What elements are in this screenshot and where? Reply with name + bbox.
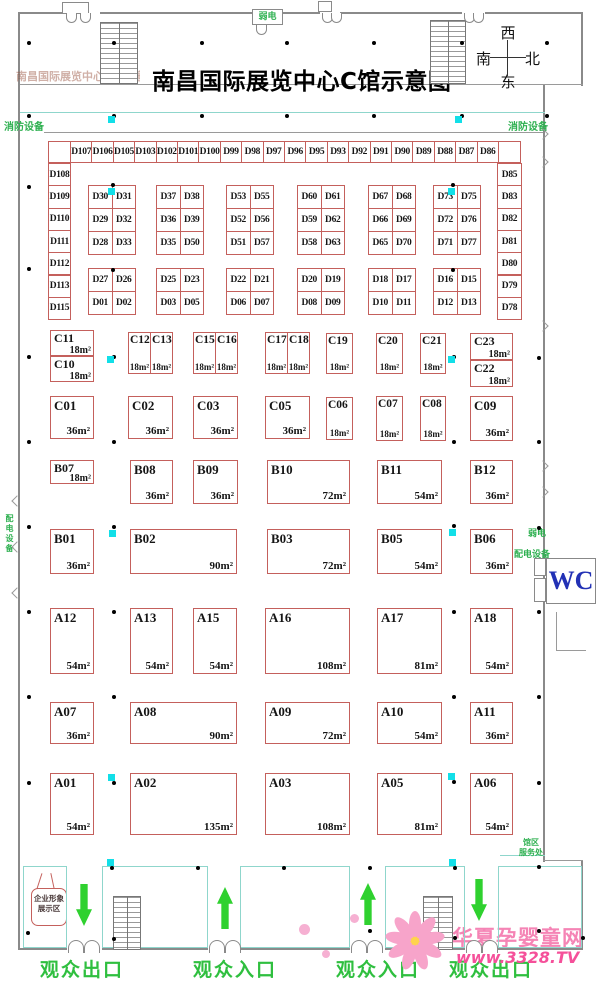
cyan-marker <box>109 530 116 537</box>
booth-D83: D83 <box>497 185 522 208</box>
booth-D35: D35 <box>156 231 181 255</box>
booth-area: 72m² <box>323 730 346 742</box>
booth-C22: C2218m² <box>470 360 513 387</box>
wall-right-step-top <box>543 84 583 85</box>
page-title: 南昌国际展览中心C馆示意图 <box>152 62 451 96</box>
booth-D61: D61 <box>321 185 346 209</box>
booth-C10: C1018m² <box>50 356 94 382</box>
booth-D71: D71 <box>433 231 458 255</box>
cyan-marker <box>455 116 462 123</box>
booth-area: 81m² <box>415 821 438 833</box>
booth-C02: C0236m² <box>128 396 173 439</box>
booth-D23: D23 <box>180 268 205 292</box>
booth-B10: B1072m² <box>267 460 350 504</box>
booth-C13: C1318m² <box>150 332 173 374</box>
booth-A15: A1554m² <box>193 608 237 674</box>
pillar-dot <box>451 183 455 187</box>
booth-id: C01 <box>54 398 76 414</box>
booth-id: A01 <box>54 775 76 791</box>
booth-id: C21 <box>422 335 442 347</box>
booth-area: 18m² <box>70 473 91 484</box>
booth-area: 36m² <box>283 425 306 437</box>
booth-area: 72m² <box>323 490 346 502</box>
wc-bracket-horizontal <box>556 650 586 651</box>
booth-area: 36m² <box>486 427 509 439</box>
service-desk-line2: 服务处 <box>512 848 550 858</box>
booth-area: 54m² <box>67 660 90 672</box>
booth-A12: A1254m² <box>50 608 94 674</box>
booth-id: A16 <box>269 610 291 626</box>
booth-C18: C1818m² <box>287 332 310 374</box>
booth-D13: D13 <box>457 291 482 315</box>
booth-area: 18m² <box>421 362 445 372</box>
booth-id: B03 <box>271 531 293 547</box>
booth-D96: D96 <box>284 141 306 163</box>
booth-id: C17 <box>267 334 287 346</box>
cyan-marker <box>448 773 455 780</box>
booth-id: A02 <box>134 775 156 791</box>
booth-area: 36m² <box>67 425 90 437</box>
pillar-dot <box>452 780 456 784</box>
booth-id: C22 <box>474 361 495 376</box>
booth-id: C05 <box>269 398 291 414</box>
d-corridor-line <box>44 132 543 133</box>
entrance-bay <box>23 866 67 948</box>
booth-area: 54m² <box>67 821 90 833</box>
booth-D112: D112 <box>48 252 71 275</box>
booth-D90: D90 <box>391 141 413 163</box>
booth-id: C02 <box>132 398 154 414</box>
entrance-label-left: 观众入口 <box>193 955 277 982</box>
pillar-dot <box>111 268 115 272</box>
booth-id: C19 <box>328 335 348 347</box>
booth-D76: D76 <box>457 208 482 232</box>
booth-B01: B0136m² <box>50 529 94 574</box>
booth-D67: D67 <box>368 185 393 209</box>
booth-area: 36m² <box>67 560 90 572</box>
booth-A02: A02135m² <box>130 773 237 835</box>
cyan-marker <box>448 356 455 363</box>
compass-south: 南 <box>476 48 491 69</box>
booth-area: 90m² <box>210 730 233 742</box>
booth-area: 18m² <box>266 362 287 372</box>
booth-id: C12 <box>130 334 150 346</box>
pillar-dot <box>368 929 372 933</box>
booth-D63: D63 <box>321 231 346 255</box>
booth-C09: C0936m² <box>470 396 513 441</box>
booth-D75: D75 <box>457 185 482 209</box>
booth-D70: D70 <box>392 231 417 255</box>
booth-area: 18m² <box>327 362 352 372</box>
booth-D93: D93 <box>327 141 349 163</box>
pillar-dot <box>537 781 541 785</box>
booth-id: B09 <box>197 462 219 478</box>
pillar-dot <box>27 781 31 785</box>
entrance-bay <box>240 866 350 948</box>
pillar-dot <box>112 41 116 45</box>
booth-D80: D80 <box>497 252 522 275</box>
pillar-dot <box>545 41 549 45</box>
booth-area: 36m² <box>211 425 234 437</box>
booth-D98: D98 <box>241 141 263 163</box>
pillar-dot <box>27 267 31 271</box>
booth-id: A07 <box>54 704 76 720</box>
pillar-dot <box>112 440 116 444</box>
booth-D12: D12 <box>433 291 458 315</box>
booth-B11: B1154m² <box>377 460 442 504</box>
booth-id: C23 <box>474 334 495 349</box>
wall-joint <box>537 320 548 331</box>
booth-area: 18m² <box>489 349 510 360</box>
exhibition-floor-plan: 南昌国际展览中心C馆示意图 南昌国际展览中心C馆示意图 西 南 北 东 消防设备… <box>0 0 600 984</box>
booth-area: 18m² <box>70 371 91 382</box>
pillar-dot <box>196 866 200 870</box>
wall-joint <box>537 156 548 167</box>
pillar-dot <box>581 936 585 940</box>
booth-B06: B0636m² <box>470 529 513 574</box>
booth-area: 54m² <box>486 821 509 833</box>
booth-C16: C1618m² <box>215 332 238 374</box>
booth-id: C11 <box>54 331 74 346</box>
booth-id: C20 <box>378 335 398 347</box>
fire-equipment-label-left: 消防设备 <box>4 118 44 133</box>
booth-D79: D79 <box>497 275 522 298</box>
door-arc <box>367 940 383 953</box>
booth-D32: D32 <box>112 208 137 232</box>
booth-D52: D52 <box>226 208 251 232</box>
booth-C11: C1118m² <box>50 330 94 356</box>
pillar-dot <box>112 781 116 785</box>
pillar-dot <box>537 865 541 869</box>
booth-C08: C0818m² <box>420 396 446 441</box>
booth-D68: D68 <box>392 185 417 209</box>
pillar-dot <box>27 185 31 189</box>
booth-D65: D65 <box>368 231 393 255</box>
booth-D07: D07 <box>250 291 275 315</box>
door-arc <box>331 13 342 23</box>
compass-west: 西 <box>500 22 515 43</box>
booth-A03: A03108m² <box>265 773 350 835</box>
booth-area: 54m² <box>415 490 438 502</box>
booth-A18: A1854m² <box>470 608 513 674</box>
booth-id: A08 <box>134 704 156 720</box>
booth-C12: C1218m² <box>128 332 151 374</box>
wc-room: WC <box>546 558 596 604</box>
pillar-dot <box>111 183 115 187</box>
wc-fixture-2 <box>534 578 546 602</box>
booth-B09: B0936m² <box>193 460 238 504</box>
pillar-dot <box>372 41 376 45</box>
booth-D31: D31 <box>112 185 137 209</box>
booth-D11: D11 <box>392 291 417 315</box>
booth-area: 18m² <box>489 376 510 387</box>
booth-area: 18m² <box>216 362 237 372</box>
booth-D108: D108 <box>48 163 71 186</box>
booth-B02: B0290m² <box>130 529 237 574</box>
booth-C05: C0536m² <box>265 396 310 439</box>
booth-D101: D101 <box>177 141 199 163</box>
booth-C06: C0618m² <box>326 397 353 440</box>
pillar-dot <box>537 440 541 444</box>
booth-C21: C2118m² <box>420 333 446 374</box>
booth-area: 81m² <box>415 660 438 672</box>
booth-B03: B0372m² <box>267 529 350 574</box>
booth-D36: D36 <box>156 208 181 232</box>
booth-area: 18m² <box>377 429 402 439</box>
booth-id: A11 <box>474 704 496 720</box>
cyan-marker <box>108 116 115 123</box>
booth-D105: D105 <box>113 141 135 163</box>
door-arc <box>209 940 225 953</box>
wall-joint <box>11 495 22 506</box>
booth-area: 18m² <box>151 362 172 372</box>
exit-label-left: 观众出口 <box>40 955 124 982</box>
booth-C15: C1518m² <box>193 332 216 374</box>
pillar-dot <box>451 268 455 272</box>
booth-D110: D110 <box>48 208 71 231</box>
booth-D88: D88 <box>434 141 456 163</box>
booth-D66: D66 <box>368 208 393 232</box>
booth-D59: D59 <box>297 208 322 232</box>
booth-D57: D57 <box>250 231 275 255</box>
booth-area: 36m² <box>486 560 509 572</box>
vent-box <box>318 1 332 12</box>
booth-D10: D10 <box>368 291 393 315</box>
booth-D89: D89 <box>412 141 434 163</box>
pillar-dot <box>452 524 456 528</box>
pillar-dot <box>27 41 31 45</box>
booth-A17: A1781m² <box>377 608 442 674</box>
booth-A07: A0736m² <box>50 702 94 744</box>
door-arc <box>66 13 77 23</box>
booth-D99: D99 <box>220 141 242 163</box>
booth-A06: A0654m² <box>470 773 513 835</box>
booth-area: 72m² <box>323 560 346 572</box>
booth-D81: D81 <box>497 230 522 253</box>
booth-id: B11 <box>381 462 402 478</box>
booth-D69: D69 <box>392 208 417 232</box>
booth-area: 54m² <box>210 660 233 672</box>
booth-D25: D25 <box>156 268 181 292</box>
booth-D33: D33 <box>112 231 137 255</box>
booth-D56: D56 <box>250 208 275 232</box>
pillar-dot <box>27 695 31 699</box>
cyan-marker <box>108 774 115 781</box>
wc-label: WC <box>549 566 594 596</box>
booth-area: 108m² <box>317 821 346 833</box>
cyan-marker <box>449 859 456 866</box>
booth-id: C18 <box>289 334 309 346</box>
booth-D100: D100 <box>198 141 220 163</box>
stairwell <box>100 22 138 84</box>
booth-area: 18m² <box>70 345 91 356</box>
booth-id: A18 <box>474 610 496 626</box>
booth-D107: D107 <box>70 141 92 163</box>
booth-A09: A0972m² <box>265 702 350 744</box>
booth-B05: B0554m² <box>377 529 442 574</box>
booth-area: 54m² <box>486 660 509 672</box>
booth-id: B05 <box>381 531 403 547</box>
booth-D50: D50 <box>180 231 205 255</box>
door-arc <box>68 940 84 953</box>
booth-D08: D08 <box>297 291 322 315</box>
booth-id: A13 <box>134 610 156 626</box>
booth-D37: D37 <box>156 185 181 209</box>
booth-area: 36m² <box>211 490 234 502</box>
booth-area: 54m² <box>415 730 438 742</box>
weak-current-box: 弱电 <box>252 9 283 25</box>
booth-D91: D91 <box>370 141 392 163</box>
pillar-dot <box>200 41 204 45</box>
booth-C23: C2318m² <box>470 333 513 360</box>
door-arc <box>84 940 100 953</box>
pillar-dot <box>537 929 541 933</box>
compass-cross-vertical <box>507 40 508 76</box>
booth-D51: D51 <box>226 231 251 255</box>
booth-area: 18m² <box>129 362 150 372</box>
booth-area: 36m² <box>486 730 509 742</box>
booth-D72: D72 <box>433 208 458 232</box>
booth-D60: D60 <box>297 185 322 209</box>
booth-id: C16 <box>217 334 237 346</box>
booth-area: 18m² <box>421 429 445 439</box>
booth-D09: D09 <box>321 291 346 315</box>
booth-id: C09 <box>474 398 496 414</box>
booth-id: A06 <box>474 775 496 791</box>
booth-D95: D95 <box>305 141 327 163</box>
booth-D03: D03 <box>156 291 181 315</box>
booth-D15: D15 <box>457 268 482 292</box>
booth-area: 18m² <box>327 428 352 438</box>
pillar-dot <box>452 695 456 699</box>
booth-area: 36m² <box>146 490 169 502</box>
booth-D38: D38 <box>180 185 205 209</box>
booth-D17: D17 <box>392 268 417 292</box>
booth-B08: B0836m² <box>130 460 173 504</box>
entrance-arrow <box>360 883 376 925</box>
booth-D115: D115 <box>48 297 71 320</box>
cyan-marker <box>107 356 114 363</box>
pillar-dot <box>112 610 116 614</box>
pillar-dot <box>27 114 31 118</box>
booth-id: B12 <box>474 462 496 478</box>
pillar-dot <box>537 695 541 699</box>
booth-D102: D102 <box>156 141 178 163</box>
wall-top <box>18 12 583 14</box>
pillar-dot <box>285 41 289 45</box>
pillar-dot <box>27 525 31 529</box>
booth-D86: D86 <box>477 141 499 163</box>
booth-A08: A0890m² <box>130 702 237 744</box>
door-arc <box>482 940 498 953</box>
pillar-dot <box>537 356 541 360</box>
booth-id: A09 <box>269 704 291 720</box>
booth-D02: D02 <box>112 291 137 315</box>
pillar-dot <box>27 610 31 614</box>
door-arc <box>225 940 241 953</box>
booth-area: 54m² <box>146 660 169 672</box>
booth-D85: D85 <box>497 163 522 186</box>
pillar-dot <box>460 41 464 45</box>
booth-area: 108m² <box>317 660 346 672</box>
booth-D78: D78 <box>497 297 522 320</box>
booth-D58: D58 <box>297 231 322 255</box>
pillar-dot <box>545 114 549 118</box>
booth-area: 135m² <box>204 821 233 833</box>
door-arc <box>351 940 367 953</box>
booth-C20: C2018m² <box>376 333 403 374</box>
booth-D39: D39 <box>180 208 205 232</box>
booth-id: C13 <box>152 334 172 346</box>
compass-east: 东 <box>500 71 515 92</box>
compass-north: 北 <box>525 48 540 69</box>
entrance-bay <box>498 866 582 948</box>
booth-D92: D92 <box>348 141 370 163</box>
booth-D27: D27 <box>88 268 113 292</box>
booth-A10: A1054m² <box>377 702 442 744</box>
booth-C17: C1718m² <box>265 332 288 374</box>
wall-joint <box>11 587 22 598</box>
booth-C03: C0336m² <box>193 396 238 439</box>
booth-empty-right <box>498 141 521 163</box>
pillar-dot <box>453 936 457 940</box>
booth-D20: D20 <box>297 268 322 292</box>
inner-teal-line <box>20 112 545 113</box>
booth-B07: B0718m² <box>50 460 94 484</box>
booth-D29: D29 <box>88 208 113 232</box>
cyan-marker <box>107 859 114 866</box>
booth-area: 54m² <box>415 560 438 572</box>
booth-area: 36m² <box>146 425 169 437</box>
pillar-dot <box>452 440 456 444</box>
wc-bracket-vertical <box>556 612 557 650</box>
booth-C01: C0136m² <box>50 396 94 439</box>
pillar-dot <box>112 937 116 941</box>
cyan-marker <box>108 188 115 195</box>
booth-D22: D22 <box>226 268 251 292</box>
wall-right-main <box>543 84 545 862</box>
booth-D21: D21 <box>250 268 275 292</box>
booth-id: B08 <box>134 462 156 478</box>
pillar-dot <box>368 866 372 870</box>
booth-area: 36m² <box>486 490 509 502</box>
booth-A13: A1354m² <box>130 608 173 674</box>
booth-A05: A0581m² <box>377 773 442 835</box>
pillar-dot <box>200 114 204 118</box>
booth-id: B10 <box>271 462 293 478</box>
booth-id: C07 <box>378 398 398 410</box>
booth-area: 36m² <box>67 730 90 742</box>
booth-id: A03 <box>269 775 291 791</box>
booth-id: A17 <box>381 610 403 626</box>
booth-D109: D109 <box>48 185 71 208</box>
booth-D113: D113 <box>48 275 71 298</box>
pillar-dot <box>110 866 114 870</box>
booth-id: B06 <box>474 531 496 547</box>
pillar-dot <box>285 114 289 118</box>
booth-D53: D53 <box>226 185 251 209</box>
booth-D77: D77 <box>457 231 482 255</box>
compass: 西 南 北 东 <box>476 22 540 92</box>
wall-joint <box>537 486 548 497</box>
stairwell <box>430 20 466 84</box>
cyan-marker <box>448 188 455 195</box>
booth-A16: A16108m² <box>265 608 350 674</box>
booth-id: C06 <box>328 399 348 411</box>
service-desk-label: 馆区 服务处 <box>512 838 550 858</box>
booth-area: 90m² <box>210 560 233 572</box>
booth-id: C03 <box>197 398 219 414</box>
